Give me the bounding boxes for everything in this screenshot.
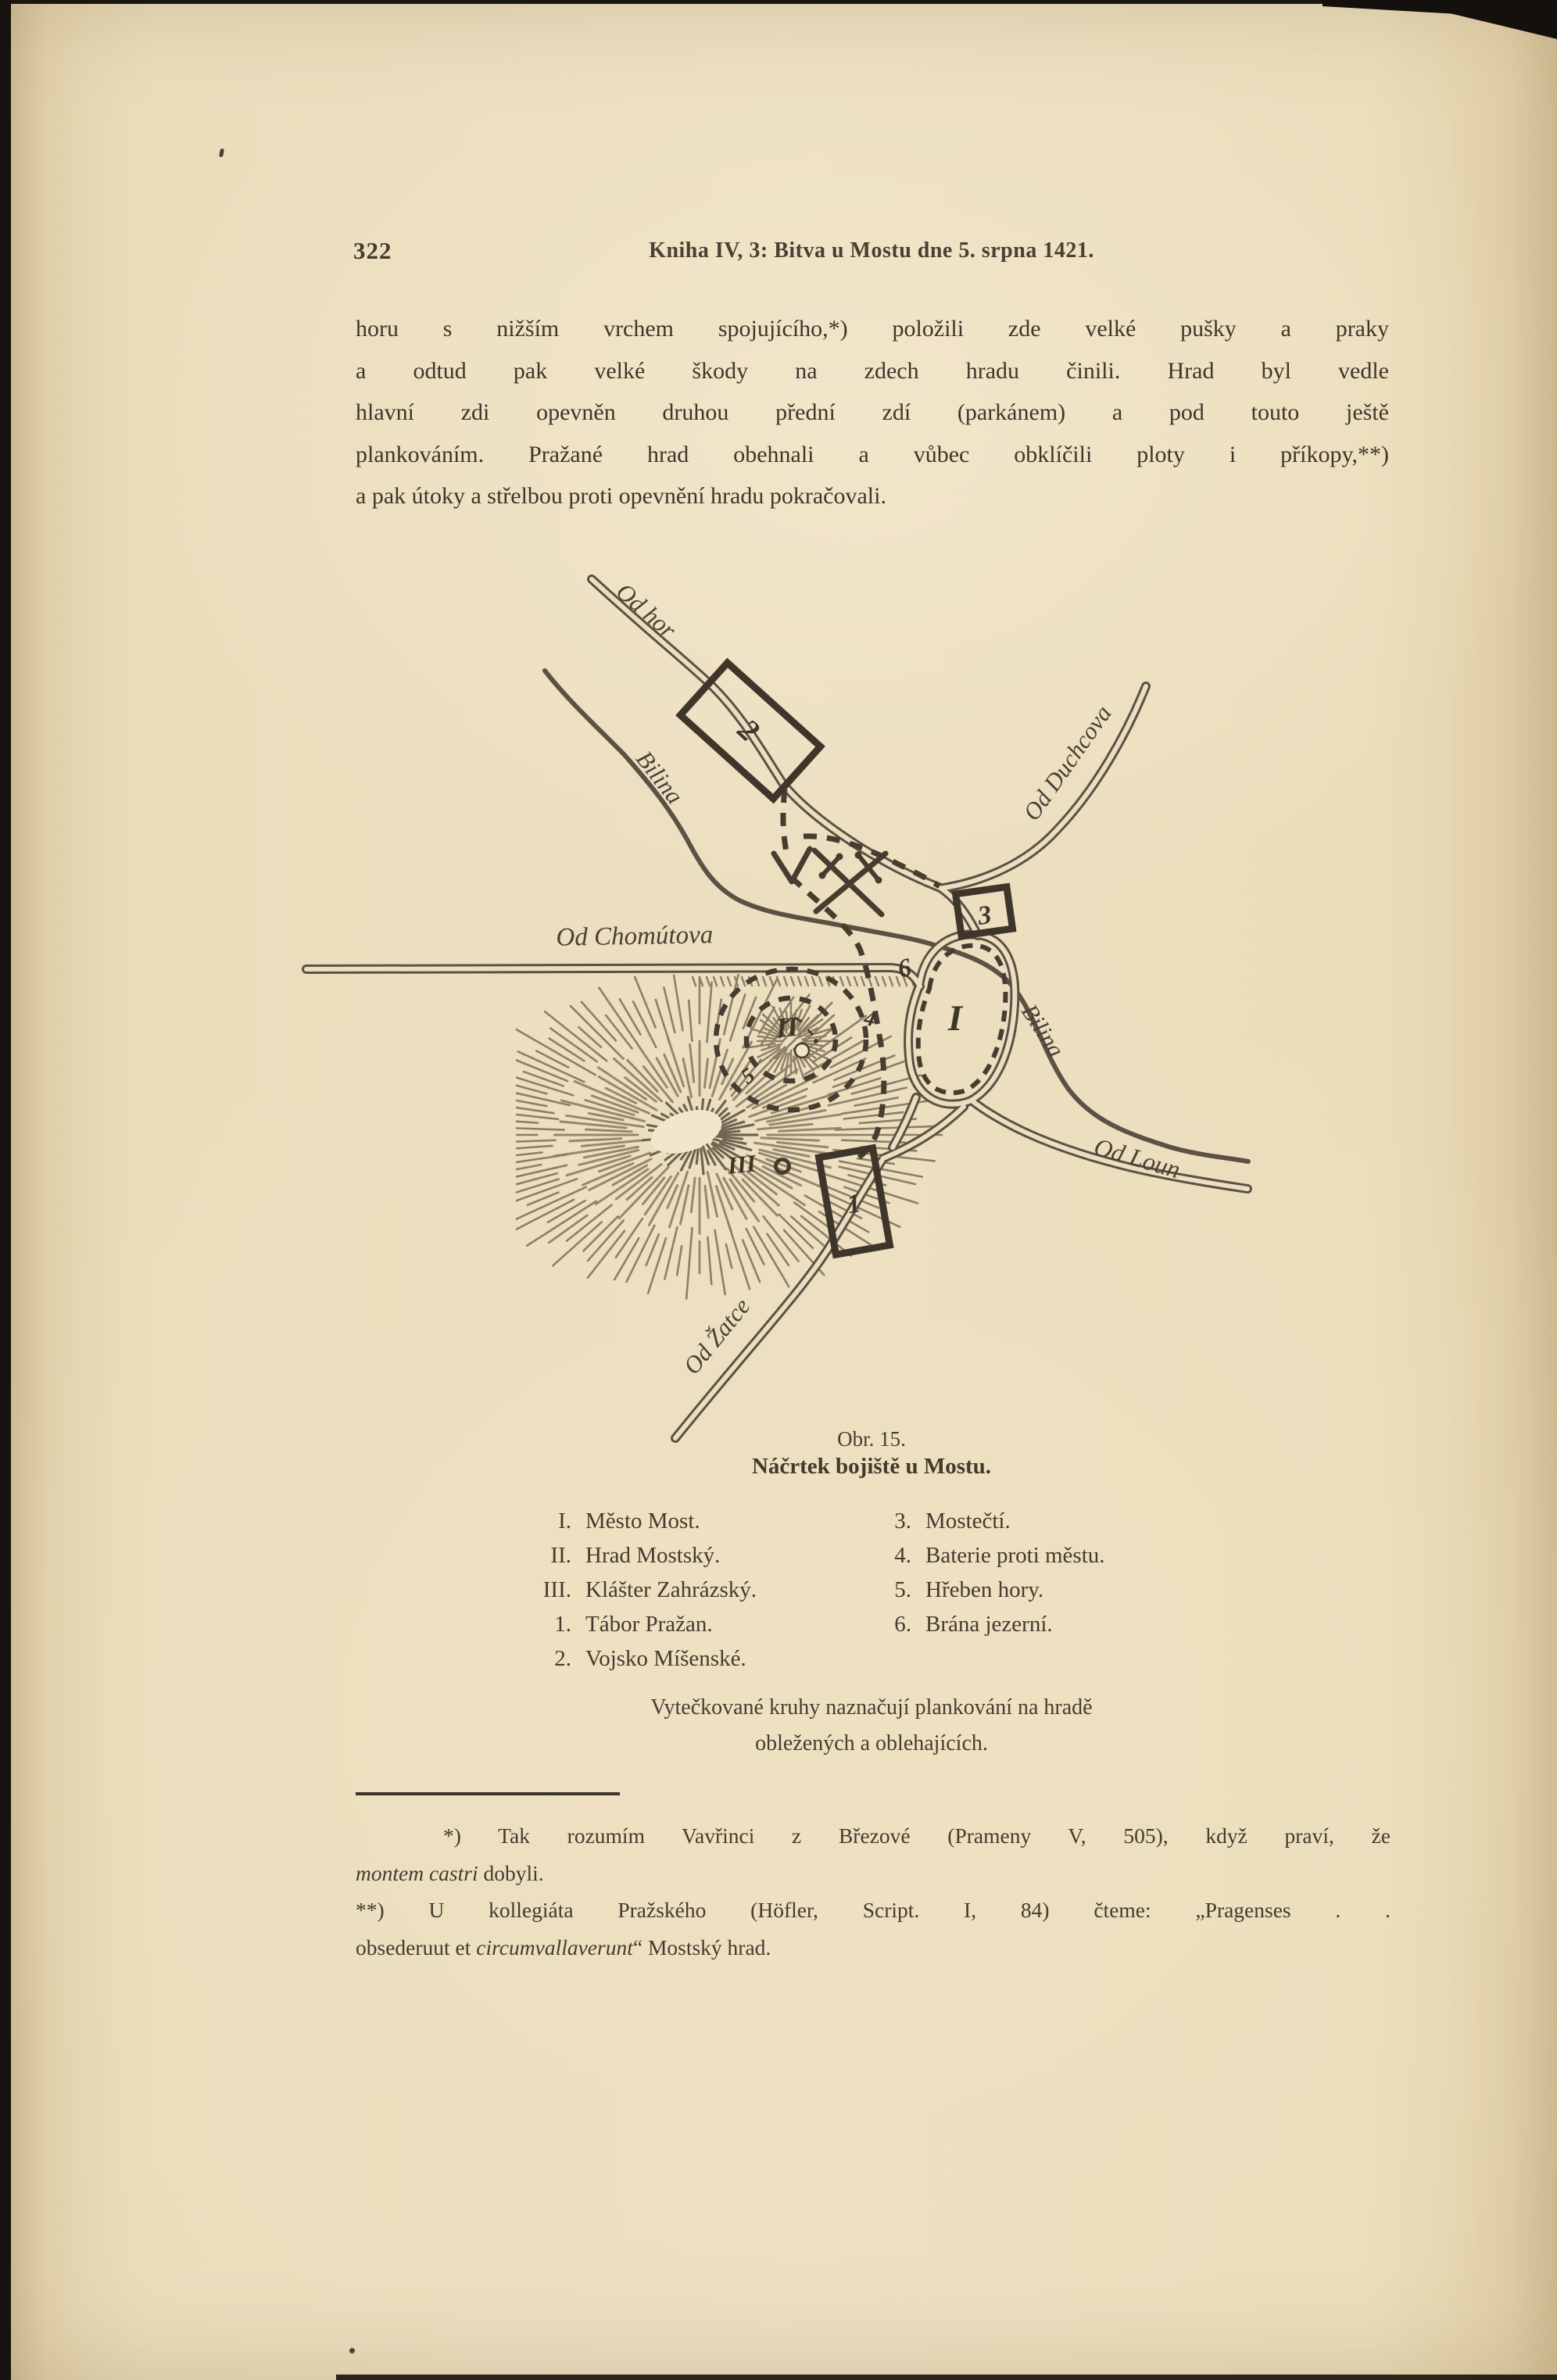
body-paragraph: horu s nižším vrchem spojujícího,*) polo… bbox=[356, 308, 1389, 517]
legend-label: Brána jezerní. bbox=[925, 1612, 1053, 1637]
map-label-bilina-lower: Bilina bbox=[1016, 1000, 1069, 1061]
legend-numeral: 4. bbox=[743, 1543, 911, 1569]
footnote-line: montem castri dobyli. bbox=[356, 1855, 1391, 1892]
body-line: a odtud pak velké škody na zdech hradu č… bbox=[356, 350, 1389, 392]
legend-right-column: 3.Mostečtí. 4.Baterie proti městu. 5.Hře… bbox=[743, 1509, 1105, 1646]
map-label-castle-II: II bbox=[774, 1011, 800, 1044]
scan-edge-bottom bbox=[336, 2375, 1557, 2380]
legend-item: 1.Tábor Pražan. bbox=[356, 1612, 757, 1646]
legend-numeral: II. bbox=[356, 1543, 571, 1569]
legend-numeral: III. bbox=[356, 1577, 571, 1603]
figure-caption-title: Náčrtek bojiště u Mostu. bbox=[356, 1454, 1387, 1480]
legend-label: Tábor Pražan. bbox=[585, 1612, 713, 1637]
map-label-battery-4: 4 bbox=[861, 1006, 878, 1032]
legend-item: 6.Brána jezerní. bbox=[743, 1612, 1105, 1646]
legend-left-column: I.Město Most. II.Hrad Mostský. III.Klášt… bbox=[356, 1509, 757, 1680]
legend-item: 2.Vojsko Míšenské. bbox=[356, 1646, 757, 1680]
figure-note: Vytečkované kruhy naznačují plankování n… bbox=[356, 1690, 1387, 1762]
figure-note-line: Vytečkované kruhy naznačují plankování n… bbox=[356, 1690, 1387, 1726]
legend-item: 5.Hřeben hory. bbox=[743, 1577, 1105, 1612]
legend-label: Hřeben hory. bbox=[925, 1577, 1043, 1603]
map-label-od-chomutova: Od Chomútova bbox=[556, 921, 713, 951]
scan-edge-corner bbox=[1323, 0, 1557, 39]
running-header: Kniha IV, 3: Bitva u Mostu dne 5. srpna … bbox=[356, 238, 1387, 263]
paper-speck bbox=[349, 2348, 355, 2353]
footnote-line: obsederuut et circumvallaverunt“ Mostský… bbox=[356, 1929, 1391, 1967]
legend-item: I.Město Most. bbox=[356, 1509, 757, 1543]
legend-item: II.Hrad Mostský. bbox=[356, 1543, 757, 1577]
scan-edge-left bbox=[0, 0, 11, 2380]
book-page: 322 Kniha IV, 3: Bitva u Mostu dne 5. sr… bbox=[0, 0, 1557, 2380]
legend-numeral: 2. bbox=[356, 1646, 571, 1672]
siege-line-from-camp bbox=[783, 789, 786, 852]
battle-map: 2 3 1 Od hor Bilina Od Duchcova Od Chomú… bbox=[297, 559, 1258, 1450]
map-label-od-loun: Od Loun bbox=[1091, 1133, 1183, 1184]
figure-caption-number: Obr. 15. bbox=[356, 1427, 1387, 1451]
body-line: plankováním. Pražané hrad obehnali a vůb… bbox=[356, 434, 1389, 476]
legend-label: Baterie proti městu. bbox=[925, 1543, 1105, 1569]
legend-label: Mostečtí. bbox=[925, 1509, 1011, 1534]
map-label-od-duchcova: Od Duchcova bbox=[1018, 700, 1117, 825]
legend-item: III.Klášter Zahrázský. bbox=[356, 1577, 757, 1612]
crossed-swords-battle-icon bbox=[814, 850, 886, 914]
map-label-od-zatce: Od Žatce bbox=[678, 1293, 755, 1380]
legend-numeral: I. bbox=[356, 1509, 571, 1534]
legend-item: 3.Mostečtí. bbox=[743, 1509, 1105, 1543]
map-label-city-I: I bbox=[947, 998, 964, 1039]
footnote-line: **) U kollegiáta Pražského (Höfler, Scri… bbox=[356, 1891, 1391, 1929]
legend-numeral: 6. bbox=[743, 1612, 911, 1637]
map-label-monastery-III: III bbox=[725, 1149, 758, 1179]
figure-note-line: obležených a oblehajících. bbox=[356, 1726, 1387, 1762]
body-line: a pak útoky a střelbou proti opevnění hr… bbox=[356, 475, 1389, 517]
advance-arrow-icon bbox=[774, 849, 810, 882]
meissen-camp-rect: 2 bbox=[680, 663, 820, 799]
bilina-river bbox=[545, 671, 1248, 1161]
legend-item: 4.Baterie proti městu. bbox=[743, 1543, 1105, 1577]
legend-numeral: 1. bbox=[356, 1612, 571, 1637]
body-line: hlavní zdi opevněn druhou přední zdí (pa… bbox=[356, 392, 1389, 434]
legend-numeral: 5. bbox=[743, 1577, 911, 1603]
legend-label: Město Most. bbox=[585, 1509, 700, 1534]
paper-speck bbox=[219, 149, 224, 158]
legend-numeral: 3. bbox=[743, 1509, 911, 1534]
footnote-rule bbox=[356, 1792, 620, 1795]
legend-label: Klášter Zahrázský. bbox=[585, 1577, 757, 1603]
body-line: horu s nižším vrchem spojujícího,*) polo… bbox=[356, 308, 1389, 350]
footnote-line: *) Tak rozumím Vavřinci z Březové (Prame… bbox=[356, 1817, 1391, 1855]
legend-label: Vojsko Míšenské. bbox=[585, 1646, 746, 1672]
footnotes: *) Tak rozumím Vavřinci z Březové (Prame… bbox=[356, 1817, 1391, 1966]
legend-label: Hrad Mostský. bbox=[585, 1543, 720, 1569]
